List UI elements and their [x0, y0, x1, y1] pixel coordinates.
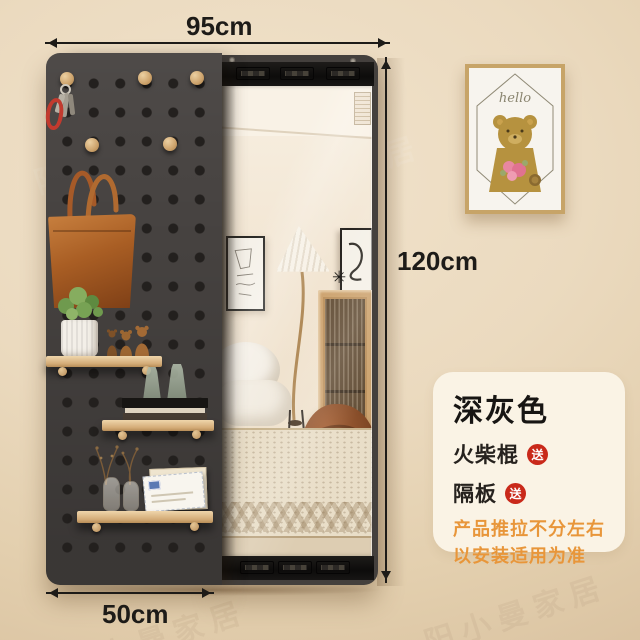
slider-hardware: [326, 67, 360, 80]
shelf-peg: [58, 367, 67, 376]
height-dimension-label: 120cm: [397, 246, 478, 277]
mail-envelope: [143, 471, 206, 512]
book: [123, 413, 207, 420]
envelope-line: [151, 491, 193, 496]
wooden-peg: [190, 71, 204, 85]
color-name: 深灰色: [453, 386, 625, 430]
wooden-peg: [138, 71, 152, 85]
wall-shadow: [377, 58, 405, 586]
book-stack: THE BIG SLEEP · RAYMOND CHANDLER: [122, 398, 208, 420]
mirror-glass: ✳: [222, 86, 372, 556]
mirror-bottom-track: [222, 556, 374, 580]
slider-hardware: [236, 67, 270, 80]
free-badge: 送: [527, 444, 548, 465]
note-line: 产品推拉不分左右: [453, 516, 625, 543]
note-line: 以安装适用为准: [453, 543, 625, 570]
floor-shadow: [52, 584, 382, 596]
mirror-top-track: [222, 62, 374, 86]
panel-width-dimension-label: 50cm: [102, 599, 169, 630]
shelf-peg: [92, 523, 101, 532]
slider-hardware: [240, 561, 274, 574]
book-logo: [122, 398, 208, 408]
slider-hardware: [316, 561, 350, 574]
bear-figurines: [104, 322, 154, 358]
shelf-peg: [190, 522, 199, 531]
width-dimension-arrow: [45, 42, 390, 44]
slider-hardware: [280, 67, 314, 80]
freebie-label: 隔板: [453, 478, 497, 508]
color-option-card: 深灰色 火柴棍 送 隔板 送 产品推拉不分左右 以安装适用为准: [433, 372, 625, 552]
free-badge: 送: [505, 483, 526, 504]
freebie-label: 火柴棍: [453, 439, 519, 469]
bear-illustration: hello: [469, 68, 561, 210]
slider-hardware: [278, 561, 312, 574]
shelf-peg: [118, 431, 127, 440]
key: [68, 94, 76, 115]
bag-handles: [46, 140, 138, 224]
panel-width-dimension-arrow: [46, 592, 214, 594]
width-dimension-label: 95cm: [186, 11, 253, 42]
stamp-icon: [148, 480, 161, 490]
mirror-glass-edge: [222, 86, 372, 556]
notes: 产品推拉不分左右 以安装适用为准: [453, 516, 625, 570]
shelf-peg: [192, 430, 201, 439]
freebie-item: 隔板 送: [453, 478, 625, 508]
wooden-peg: [163, 137, 177, 151]
envelope-line: [152, 498, 186, 502]
watermark-text: 阳小曼家居: [418, 562, 612, 640]
product-image: 阳小曼家居 阳小曼家居 阳小曼家居 阳小曼家居 阳小曼家居 ✳: [0, 0, 640, 640]
glass-vase: [103, 477, 120, 511]
hello-text: hello: [499, 91, 531, 106]
freebie-item: 火柴棍 送: [453, 439, 625, 469]
wall-art-frame: hello: [465, 64, 565, 214]
glass-vase: [123, 481, 139, 511]
plant-pot: [61, 320, 98, 357]
height-dimension-arrow: [385, 57, 387, 583]
